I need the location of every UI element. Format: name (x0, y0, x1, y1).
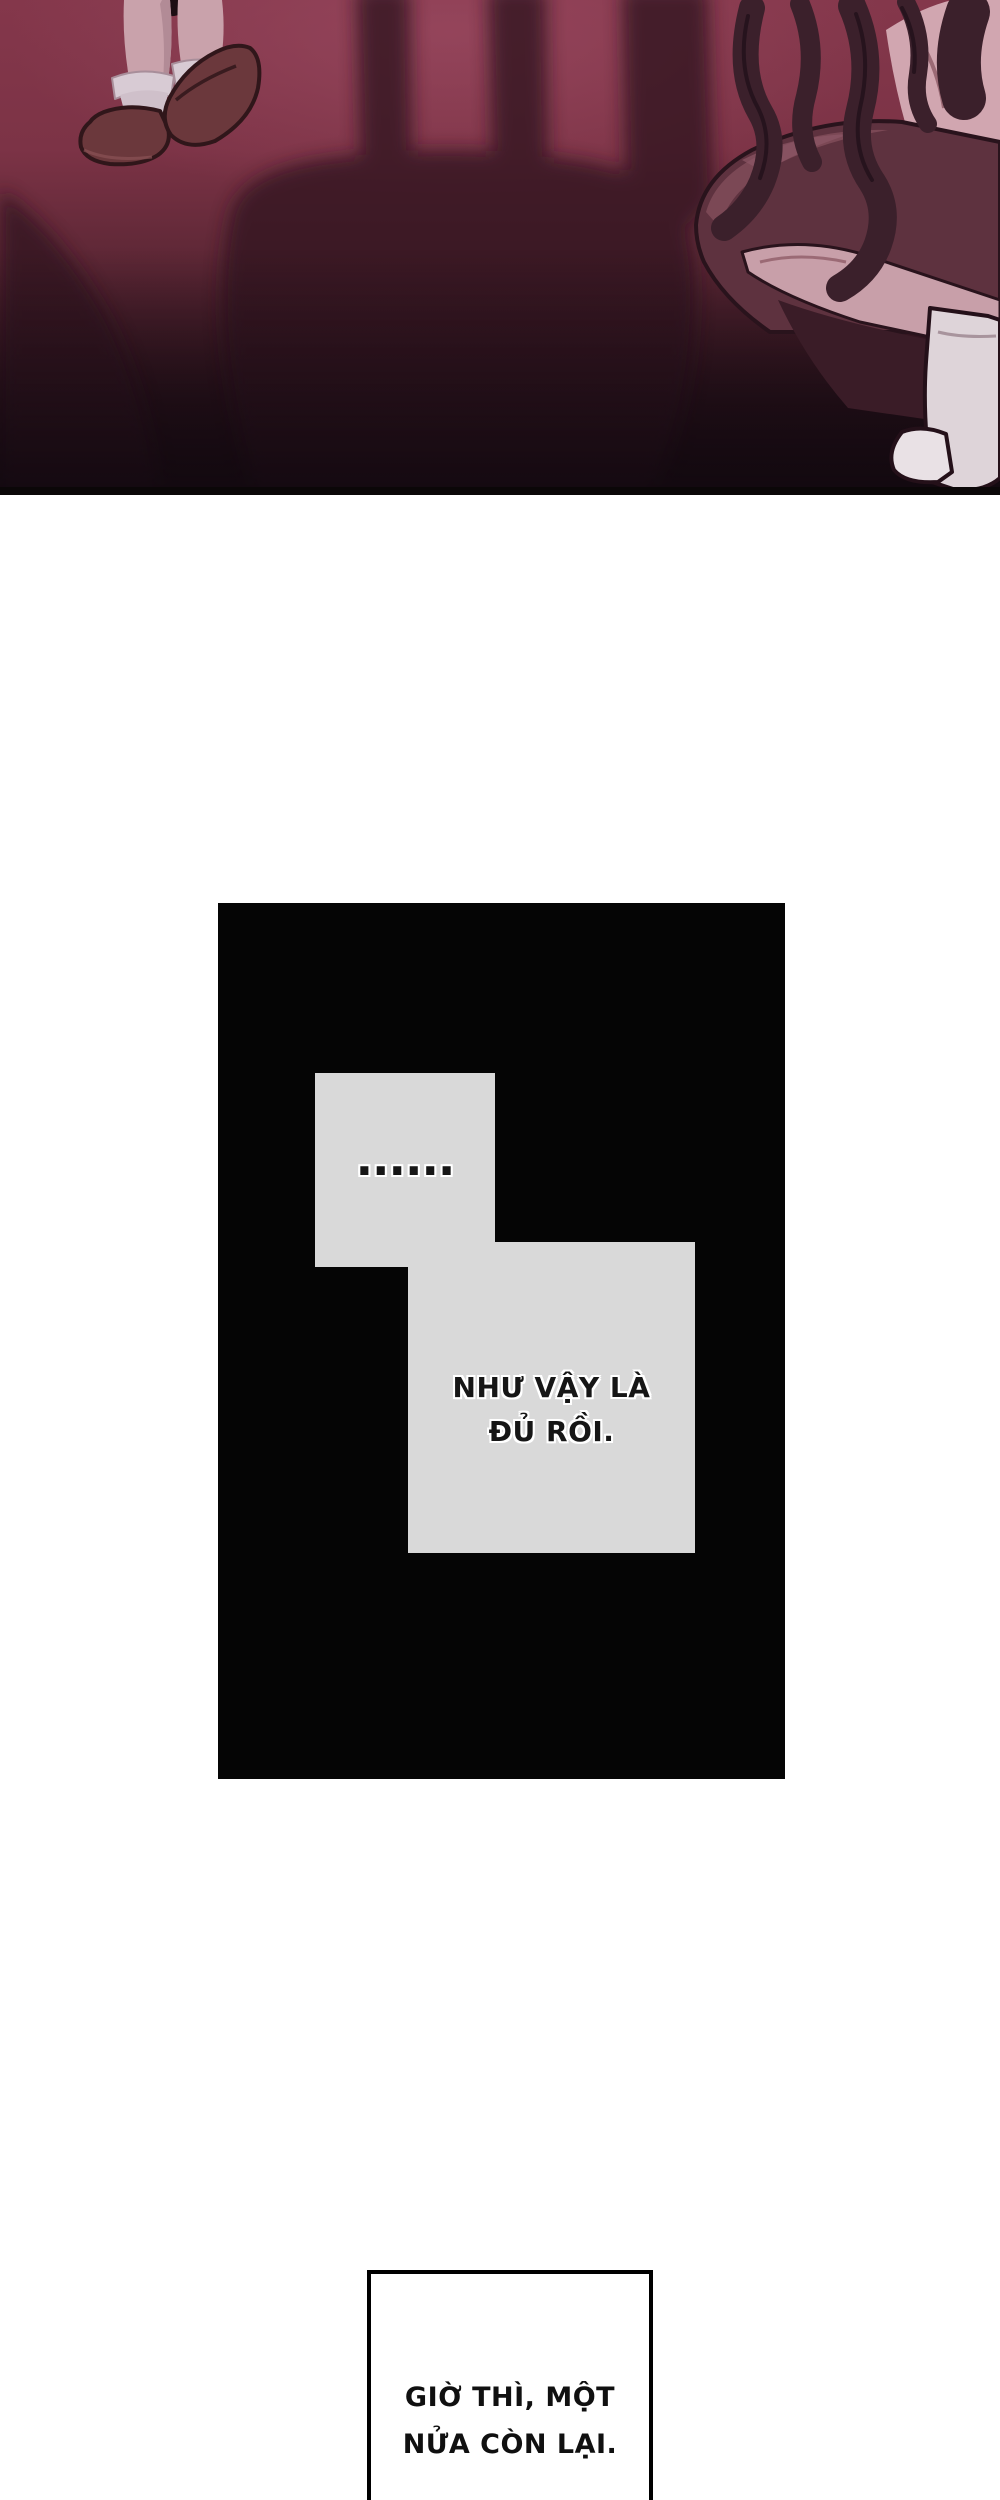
comic-page: ...... NHƯ VẬY LÀ ĐỦ RỒI. GIỜ THÌ, MỘT N… (0, 0, 1000, 2500)
scene-illustration (0, 0, 1000, 495)
speech-bubble-ellipsis: ...... (315, 1073, 495, 1267)
caption-text: GIỜ THÌ, MỘT NỬA CÒN LẠI. (371, 2374, 649, 2468)
panel-black: ...... NHƯ VẬY LÀ ĐỦ RỒI. (218, 903, 785, 1779)
caption-box: GIỜ THÌ, MỘT NỬA CÒN LẠI. (367, 2270, 653, 2500)
speech-text: NHƯ VẬY LÀ ĐỦ RỒI. (408, 1366, 695, 1454)
ellipsis-text: ...... (315, 1137, 495, 1181)
speech-bubble-main: NHƯ VẬY LÀ ĐỦ RỒI. (408, 1242, 695, 1553)
speech-line-2: ĐỦ RỒI. (408, 1410, 695, 1454)
caption-line-2: NỬA CÒN LẠI. (371, 2421, 649, 2468)
caption-line-1: GIỜ THÌ, MỘT (371, 2374, 649, 2421)
speech-line-1: NHƯ VẬY LÀ (408, 1366, 695, 1410)
art-panel-scene (0, 0, 1000, 495)
panel-bottom-edge (0, 487, 1000, 495)
